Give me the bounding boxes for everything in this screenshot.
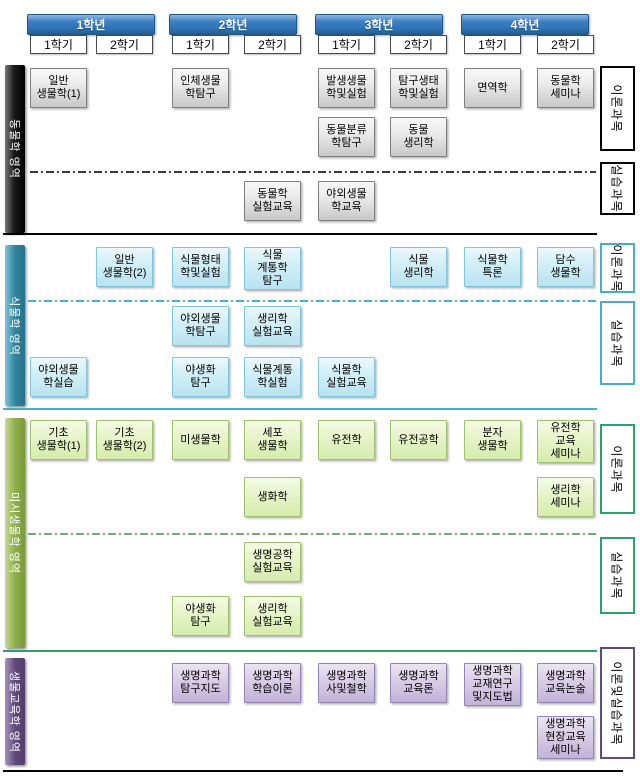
side-label-text: 이론및실습과목 — [609, 661, 626, 745]
course-box-animal: 동물분류 학탐구 — [318, 117, 375, 157]
separator-page-bottom — [3, 770, 623, 772]
section-bar-plant-label: 식물학 영역 — [7, 296, 23, 356]
side-label-practice-animal: 실습과목 — [600, 162, 635, 215]
course-box-micro: 유전학 교육 세미나 — [537, 420, 594, 463]
course-box-plant: 식물 생리학 — [390, 247, 447, 287]
side-label-text: 이론과목 — [609, 244, 626, 292]
side-label-text: 실습과목 — [609, 319, 626, 367]
section-bar-plant: 식물학 영역 — [5, 245, 25, 406]
side-label-text: 실습과목 — [609, 551, 626, 599]
course-box-bioedu: 생명과학 탐구지도 — [172, 663, 229, 703]
course-box-plant: 식물계통 학실험 — [244, 357, 301, 397]
course-box-micro: 세포 생물학 — [244, 420, 301, 460]
side-label-theory-animal: 이론과목 — [600, 66, 635, 151]
course-box-animal: 탐구생태 학및실험 — [390, 68, 447, 108]
course-box-animal: 인체생물 학탐구 — [172, 68, 229, 108]
separator-animal-bottom — [3, 233, 597, 235]
semester-tab-2-2: 2학기 — [244, 35, 301, 54]
year-header-2: 2학년 — [169, 14, 297, 35]
year-header-4: 4학년 — [461, 14, 589, 35]
course-box-micro: 기초 생물학(2) — [96, 420, 153, 460]
course-box-bioedu: 생명과학 교육론 — [390, 663, 447, 703]
course-box-animal: 동물 생리학 — [390, 117, 447, 157]
course-box-micro: 야생화 탐구 — [172, 596, 229, 636]
semester-tab-3-2: 2학기 — [390, 35, 447, 54]
course-box-animal: 일반 생물학(1) — [30, 68, 87, 108]
course-box-bioedu: 생명과학 교육논술 — [537, 663, 594, 703]
side-label-practice-plant: 실습과목 — [600, 301, 635, 385]
course-box-micro: 미생물학 — [172, 420, 229, 460]
course-box-plant: 일반 생물학(2) — [96, 247, 153, 287]
semester-tab-2-1: 1학기 — [172, 35, 229, 54]
course-box-micro: 생리학 세미나 — [537, 477, 594, 517]
course-box-plant: 생리학 실험교육 — [244, 306, 301, 346]
dashed-separator-animal — [30, 171, 596, 173]
course-box-bioedu: 생명과학 현장교육 세미나 — [537, 716, 594, 759]
course-box-animal: 야외생물 학교육 — [318, 181, 375, 221]
dashed-separator-micro — [28, 533, 596, 535]
semester-tab-4-2: 2학기 — [537, 35, 594, 54]
course-box-animal: 면역학 — [464, 68, 521, 108]
course-box-bioedu: 생명과학 사및철학 — [318, 663, 375, 703]
course-box-plant: 야외생물 학탐구 — [172, 306, 229, 346]
course-box-plant: 담수 생물학 — [537, 247, 594, 287]
course-box-micro: 기초 생물학(1) — [30, 420, 87, 460]
course-box-micro: 분자 생물학 — [464, 420, 521, 460]
course-box-micro: 생리학 실험교육 — [244, 596, 301, 636]
section-bar-bioedu-label: 생물교육학 영역 — [7, 671, 23, 753]
side-label-theory-plant: 이론과목 — [600, 243, 635, 293]
section-bar-micro-label: 미시생물학 영역 — [7, 492, 23, 574]
course-box-animal: 발생생물 학및실험 — [318, 68, 375, 108]
semester-tab-1-2: 2학기 — [96, 35, 153, 54]
side-label-practice-micro: 실습과목 — [600, 537, 635, 614]
side-label-text: 이론과목 — [609, 445, 626, 493]
course-box-plant: 식물학 특론 — [464, 247, 521, 287]
section-bar-animal-label: 동물학 영역 — [7, 119, 23, 179]
separator-micro-bottom — [3, 650, 597, 652]
course-box-animal: 동물학 실험교육 — [244, 181, 301, 221]
course-box-micro: 생명공학 실험교육 — [244, 542, 301, 582]
course-box-animal: 동물학 세미나 — [537, 68, 594, 108]
year-header-1: 1학년 — [27, 14, 155, 35]
course-box-plant: 야생화 탐구 — [172, 357, 229, 397]
course-box-micro: 생화학 — [244, 477, 301, 517]
course-box-micro: 유전공학 — [390, 420, 447, 460]
section-bar-animal: 동물학 영역 — [5, 65, 25, 233]
dashed-separator-plant — [28, 300, 596, 302]
side-label-theory-micro: 이론과목 — [600, 424, 635, 514]
course-box-bioedu: 생명과학 교재연구 및지도법 — [464, 663, 521, 706]
semester-tab-4-1: 1학기 — [464, 35, 521, 54]
separator-plant-bottom — [3, 408, 597, 410]
course-box-plant: 식물 계통학 탐구 — [244, 247, 301, 290]
course-box-plant: 식물학 실험교육 — [318, 357, 375, 397]
side-label-theory-practice-bioedu: 이론및실습과목 — [600, 647, 635, 759]
section-bar-micro: 미시생물학 영역 — [5, 418, 25, 648]
year-header-3: 3학년 — [315, 14, 443, 35]
curriculum-flowchart: 1학년 2학년 3학년 4학년 1학기 2학기 1학기 2학기 1학기 2학기 … — [0, 0, 640, 781]
section-bar-bioedu: 생물교육학 영역 — [5, 658, 25, 765]
semester-tab-3-1: 1학기 — [318, 35, 375, 54]
semester-tab-1-1: 1학기 — [30, 35, 87, 54]
course-box-plant: 야외생물 학실습 — [30, 357, 87, 397]
side-label-text: 실습과목 — [609, 164, 626, 212]
course-box-bioedu: 생명과학 학습이론 — [244, 663, 301, 703]
side-label-text: 이론과목 — [609, 84, 626, 132]
course-box-plant: 식물형태 학및실험 — [172, 247, 229, 287]
course-box-micro: 유전학 — [318, 420, 375, 460]
